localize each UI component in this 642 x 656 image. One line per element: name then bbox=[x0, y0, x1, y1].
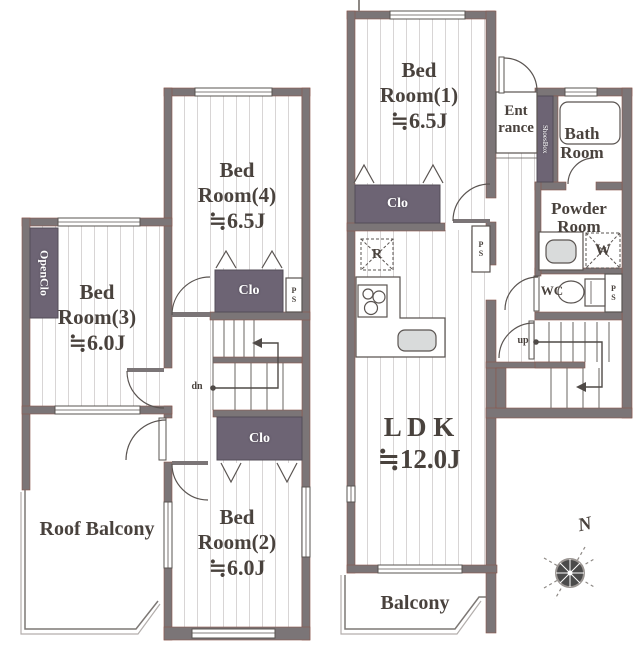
kitchen-sink-icon bbox=[398, 330, 436, 351]
room-label-bedroom4: Bed Room(4) ≒6.5J bbox=[170, 158, 304, 234]
bathroom-line2: Room bbox=[538, 143, 626, 162]
ps-label-kitchen: PS bbox=[472, 228, 490, 270]
room-label-roof-balcony: Roof Balcony bbox=[15, 518, 179, 541]
entrance-door-arc bbox=[504, 58, 537, 91]
stairs-2f bbox=[210, 320, 283, 410]
room-size: ≒6.5J bbox=[170, 208, 304, 234]
stairs-down-label: dn bbox=[186, 381, 208, 392]
bathroom-line1: Bath bbox=[538, 124, 626, 143]
stairs-up-label: up bbox=[512, 335, 534, 346]
entrance-line1: Ent bbox=[492, 103, 540, 120]
ps-label-2f: PS bbox=[286, 279, 302, 311]
stairs-1f bbox=[533, 322, 609, 408]
room-name: Bed Room(3) bbox=[48, 280, 146, 330]
room-name: Bed Room(2) bbox=[188, 505, 286, 555]
refrigerator-label: R bbox=[361, 239, 393, 270]
open-closet-label: OpenClo bbox=[30, 228, 58, 318]
room-label-bathroom: Bath Room bbox=[538, 124, 626, 162]
room-size: ≒6.0J bbox=[172, 555, 302, 581]
room-name: L D K bbox=[352, 412, 486, 443]
powder-sink-icon bbox=[546, 240, 576, 263]
closet-br2-label: Clo bbox=[217, 417, 302, 460]
floor-plan: Bed Room(4) ≒6.5J Bed Room(3) ≒6.0J Bed … bbox=[0, 0, 642, 656]
room-label-powder: Powder Room bbox=[533, 200, 625, 236]
powder-line1: Powder bbox=[533, 200, 625, 218]
balcony-label: Balcony bbox=[350, 592, 480, 615]
closet-br1-label: Clo bbox=[355, 185, 440, 223]
room-size: ≒6.0J bbox=[30, 330, 164, 356]
room-size: ≒12.0J bbox=[352, 443, 486, 476]
wc-label: WC bbox=[537, 283, 567, 299]
room-name: Bed Room(1) bbox=[370, 58, 468, 108]
entrance-line2: rance bbox=[492, 120, 540, 137]
room-label-ldk: L D K ≒12.0J bbox=[352, 412, 486, 476]
ps-label-wc: PS bbox=[605, 276, 622, 310]
room-size: ≒6.5J bbox=[352, 108, 486, 134]
room-label-bedroom1: Bed Room(1) ≒6.5J bbox=[352, 58, 486, 134]
compass-rose bbox=[556, 559, 584, 587]
room-label-entrance: Ent rance bbox=[492, 103, 540, 137]
room-label-bedroom2: Bed Room(2) ≒6.0J bbox=[172, 505, 302, 581]
compass bbox=[544, 547, 596, 599]
balcony-rail-2f bbox=[21, 490, 160, 634]
closet-br4-label: Clo bbox=[215, 270, 283, 312]
room-name: Bed Room(4) bbox=[188, 158, 286, 208]
washer-label: W bbox=[586, 233, 620, 268]
